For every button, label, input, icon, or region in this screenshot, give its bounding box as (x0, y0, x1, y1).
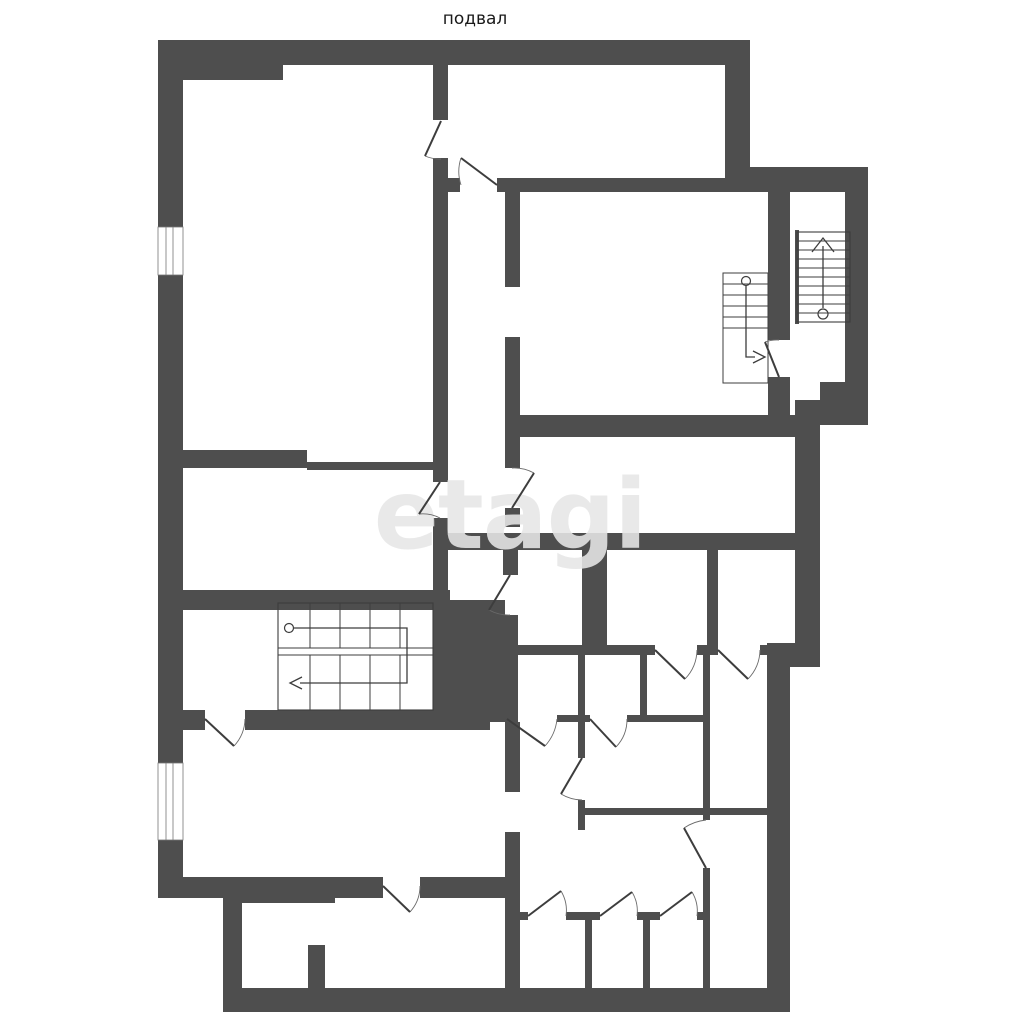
wall (845, 192, 868, 382)
wall (585, 920, 592, 988)
floor-title: подвал (443, 9, 508, 29)
wall (223, 877, 335, 903)
wall (448, 178, 460, 192)
wall (578, 655, 585, 758)
wall (760, 645, 795, 655)
wall (707, 545, 718, 645)
wall (697, 912, 710, 920)
wall (580, 808, 768, 815)
wall-opening (505, 792, 520, 832)
wall (697, 645, 718, 655)
wall (703, 655, 710, 820)
wall-opening (308, 905, 333, 945)
wall (433, 158, 448, 482)
wall (158, 450, 307, 468)
wall (640, 655, 647, 722)
wall (768, 377, 790, 427)
wall (505, 912, 528, 920)
wall (725, 40, 750, 167)
wall-opening (505, 287, 520, 337)
wall (158, 590, 450, 610)
wall (566, 912, 600, 920)
wall (223, 892, 242, 1012)
wall (183, 710, 205, 730)
wall (433, 600, 505, 722)
floor-plan-page: etagiподвал (0, 0, 1024, 1024)
wall (223, 988, 790, 1012)
wall (308, 945, 325, 988)
wall (518, 415, 795, 437)
wall (505, 722, 520, 792)
wall (505, 645, 655, 655)
wall (505, 180, 520, 287)
window (158, 227, 183, 275)
wall (497, 178, 745, 192)
wall (557, 715, 590, 722)
wall (643, 920, 650, 988)
wall (158, 65, 183, 227)
wall (637, 912, 660, 920)
wall (505, 337, 520, 468)
wall (503, 615, 518, 722)
wall (505, 877, 520, 988)
wall (158, 275, 183, 763)
floor-plan-canvas: etagiподвал (0, 0, 1024, 1024)
wall (245, 710, 490, 730)
wall (158, 40, 750, 65)
window (158, 763, 183, 840)
wall (627, 715, 710, 722)
wall (725, 167, 868, 192)
wall (433, 65, 448, 120)
watermark: etagi (374, 459, 646, 571)
wall (505, 832, 520, 877)
wall (768, 167, 790, 340)
wall (767, 655, 790, 1012)
wall (703, 868, 710, 988)
